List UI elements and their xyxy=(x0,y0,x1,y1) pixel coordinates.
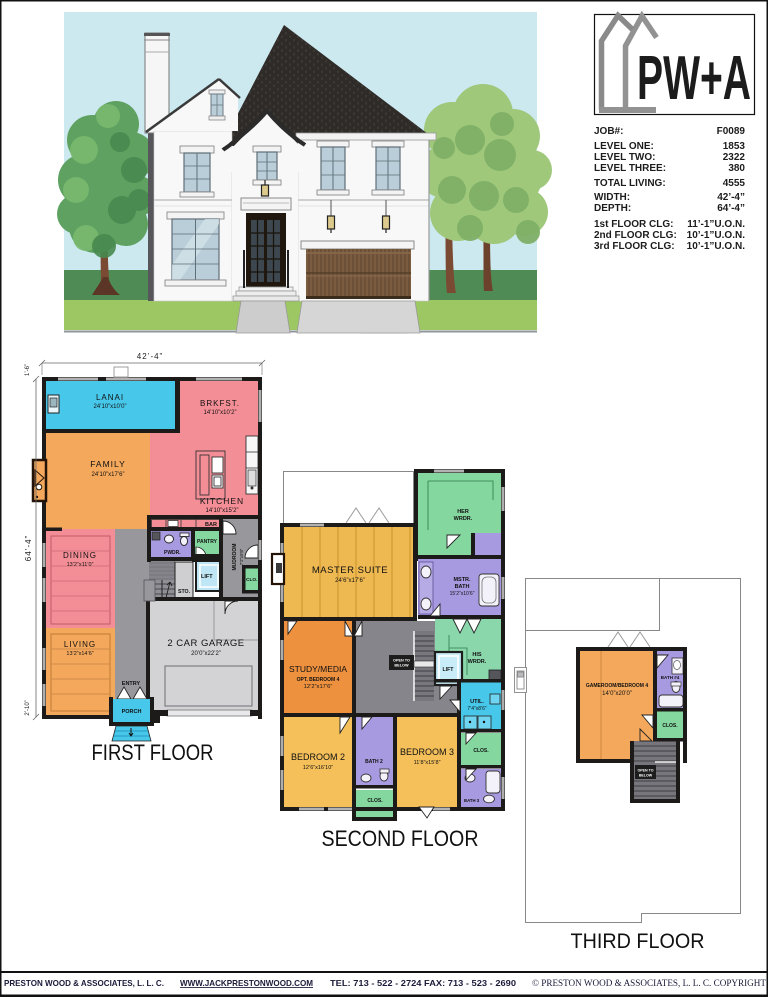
svg-text:PW+A: PW+A xyxy=(637,44,751,113)
svg-text:2322: 2322 xyxy=(723,152,746,163)
svg-text:2nd FLOOR CLG:: 2nd FLOOR CLG: xyxy=(594,230,677,241)
svg-text:BRKFST.: BRKFST. xyxy=(200,399,240,408)
svg-text:PRESTON WOOD & ASSOCIATES, L.: PRESTON WOOD & ASSOCIATES, L. L. C. xyxy=(4,978,164,988)
svg-text:DEPTH:: DEPTH: xyxy=(594,203,631,214)
svg-text:CLOS.: CLOS. xyxy=(662,723,678,729)
svg-text:7’2”x9’8”: 7’2”x9’8” xyxy=(239,548,244,565)
svg-text:24’10”x10’0”: 24’10”x10’0” xyxy=(93,404,126,410)
svg-text:2 CAR GARAGE: 2 CAR GARAGE xyxy=(167,638,244,649)
svg-text:BELOW: BELOW xyxy=(639,774,653,778)
svg-text:10’-1”U.O.N.: 10’-1”U.O.N. xyxy=(687,241,746,252)
svg-text:LANAI: LANAI xyxy=(96,393,124,402)
svg-text:3rd FLOOR CLG:: 3rd FLOOR CLG: xyxy=(594,241,675,252)
svg-text:13’2”x14’6”: 13’2”x14’6” xyxy=(66,651,93,657)
svg-text:BATH #4: BATH #4 xyxy=(661,675,680,680)
svg-text:64’-4”: 64’-4” xyxy=(717,203,745,214)
svg-text:14’10”x15’2”: 14’10”x15’2” xyxy=(205,508,238,514)
svg-text:BATH: BATH xyxy=(455,584,470,590)
svg-text:BEDROOM 2: BEDROOM 2 xyxy=(291,752,345,762)
svg-text:14’10”x10’2”: 14’10”x10’2” xyxy=(203,410,236,416)
svg-text:4555: 4555 xyxy=(723,178,746,189)
svg-text:STO.: STO. xyxy=(178,589,191,595)
svg-text:CLOS.: CLOS. xyxy=(473,748,489,754)
svg-text:MUDROOM: MUDROOM xyxy=(232,544,238,571)
svg-text:PANTRY: PANTRY xyxy=(197,539,218,545)
svg-text:LIFT: LIFT xyxy=(443,667,455,673)
svg-text:TEL: 713 - 522 - 2724 FAX:: TEL: 713 - 522 - 2724 FAX: 713 - 523 - 2… xyxy=(330,978,516,988)
svg-text:BATH 3: BATH 3 xyxy=(464,798,480,803)
svg-text:THIRD FLOOR: THIRD FLOOR xyxy=(571,929,705,953)
svg-text:20’0”x22’2”: 20’0”x22’2” xyxy=(191,651,221,657)
svg-text:LIVING: LIVING xyxy=(64,640,96,649)
svg-text:BATH 2: BATH 2 xyxy=(365,759,383,765)
svg-text:DINING: DINING xyxy=(63,551,97,560)
svg-text:STUDY/MEDIA: STUDY/MEDIA xyxy=(289,664,347,674)
svg-text:WIDTH:: WIDTH: xyxy=(594,192,630,203)
svg-text:BELOW: BELOW xyxy=(394,664,409,668)
svg-text:GAMEROOM/BEDROOM 4: GAMEROOM/BEDROOM 4 xyxy=(586,683,648,689)
svg-text:14’0”x20’0”: 14’0”x20’0” xyxy=(602,691,632,697)
svg-text:OPEN TO: OPEN TO xyxy=(393,659,410,663)
svg-text:24’6”x17’6”: 24’6”x17’6” xyxy=(335,578,365,584)
svg-text:11’8”x15’8”: 11’8”x15’8” xyxy=(414,760,441,766)
svg-text:PWDR.: PWDR. xyxy=(164,550,181,556)
svg-text:FIRST FLOOR: FIRST FLOOR xyxy=(92,740,214,765)
svg-text:KITCHEN: KITCHEN xyxy=(200,496,244,506)
svg-text:64’-4”: 64’-4” xyxy=(24,535,33,561)
svg-text:FAMILY: FAMILY xyxy=(90,459,126,469)
svg-text:1853: 1853 xyxy=(723,141,746,152)
svg-text:SECOND FLOOR: SECOND FLOOR xyxy=(322,826,479,851)
svg-text:11’-1”U.O.N.: 11’-1”U.O.N. xyxy=(687,219,745,230)
svg-text:HIS: HIS xyxy=(472,652,482,658)
svg-text:1st FLOOR CLG:: 1st FLOOR CLG: xyxy=(594,219,673,230)
svg-text:LEVEL TWO:: LEVEL TWO: xyxy=(594,152,655,163)
svg-text:1’-6”: 1’-6” xyxy=(25,364,31,376)
svg-text:© PRESTON WOOD & ASSOCIATES, L: © PRESTON WOOD & ASSOCIATES, L. L. C. CO… xyxy=(532,978,766,989)
svg-text:MSTR.: MSTR. xyxy=(453,577,471,583)
svg-text:JOB#:: JOB#: xyxy=(594,126,623,137)
svg-text:7’4”x8’6”: 7’4”x8’6” xyxy=(467,706,487,712)
svg-text:10’-1”U.O.N.: 10’-1”U.O.N. xyxy=(687,230,746,241)
svg-text:UTIL.: UTIL. xyxy=(470,699,484,705)
svg-text:BEDROOM 3: BEDROOM 3 xyxy=(400,747,454,757)
svg-text:F0089: F0089 xyxy=(717,126,746,137)
svg-text:HER: HER xyxy=(457,509,469,515)
svg-text:OPT. BEDROOM 4: OPT. BEDROOM 4 xyxy=(297,677,340,683)
svg-text:380: 380 xyxy=(728,163,745,174)
svg-text:15’2”x10’6”: 15’2”x10’6” xyxy=(450,591,475,597)
svg-text:42’-4”: 42’-4” xyxy=(137,352,163,361)
svg-text:13’2”x11’0”: 13’2”x11’0” xyxy=(67,562,94,568)
svg-text:MASTER SUITE: MASTER SUITE xyxy=(312,565,388,576)
svg-text:PORCH: PORCH xyxy=(122,709,142,715)
svg-text:WRDR.: WRDR. xyxy=(454,516,473,522)
svg-text:OPEN TO: OPEN TO xyxy=(637,769,653,773)
svg-text:CLO.: CLO. xyxy=(246,577,257,583)
svg-text:CLOS.: CLOS. xyxy=(367,798,383,804)
svg-text:12’2”x17’6”: 12’2”x17’6” xyxy=(304,684,333,690)
svg-text:42’-4”: 42’-4” xyxy=(717,192,745,203)
svg-text:2’-10”: 2’-10” xyxy=(25,700,31,715)
svg-text:WWW.JACKPRESTONWOOD.COM: WWW.JACKPRESTONWOOD.COM xyxy=(180,978,313,988)
svg-text:ENTRY: ENTRY xyxy=(122,681,141,687)
svg-text:LIFT: LIFT xyxy=(201,574,213,580)
svg-text:LEVEL ONE:: LEVEL ONE: xyxy=(594,141,654,152)
svg-text:12’6”x16’10”: 12’6”x16’10” xyxy=(303,765,333,771)
svg-text:LEVEL THREE:: LEVEL THREE: xyxy=(594,163,666,174)
svg-text:TOTAL LIVING:: TOTAL LIVING: xyxy=(594,178,666,189)
svg-text:24’10”x17’6”: 24’10”x17’6” xyxy=(91,472,124,478)
svg-text:WRDR.: WRDR. xyxy=(468,659,487,665)
